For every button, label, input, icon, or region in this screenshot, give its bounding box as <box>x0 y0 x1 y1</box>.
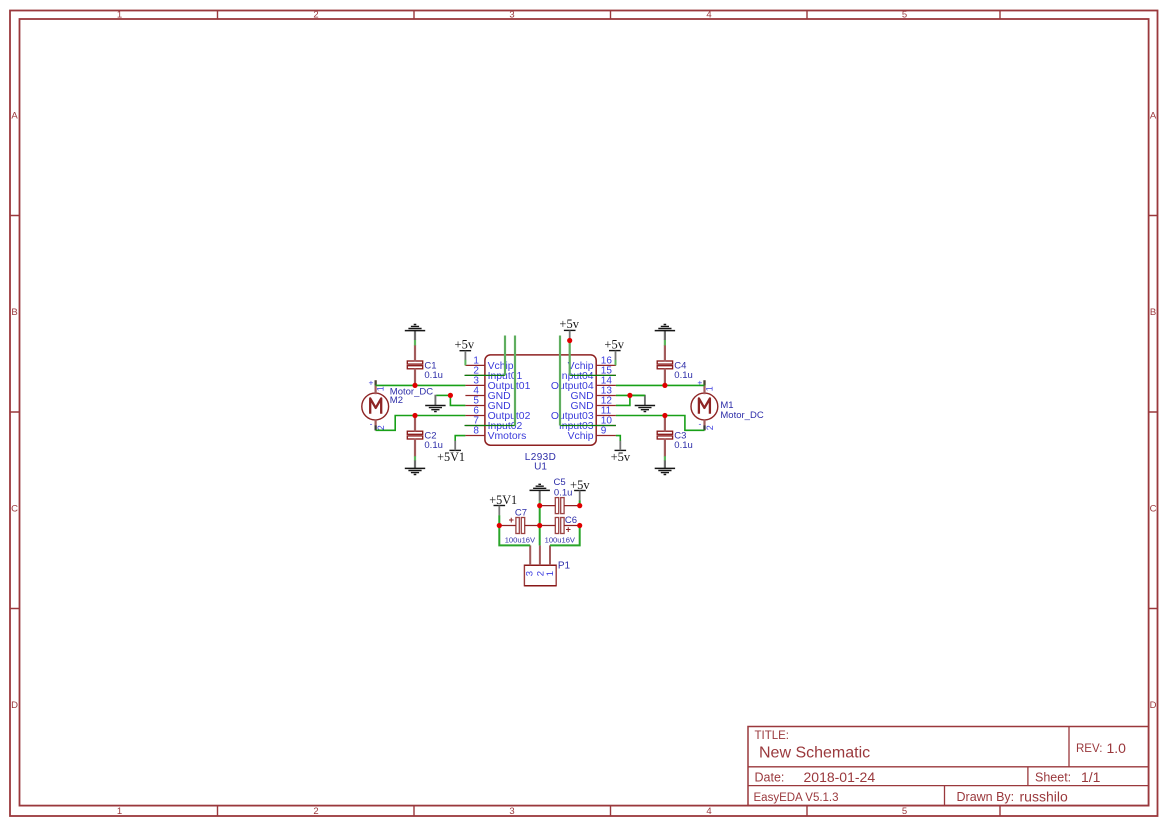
svg-text:0.1u: 0.1u <box>674 440 693 451</box>
svg-text:0.1u: 0.1u <box>674 370 693 381</box>
svg-text:3: 3 <box>509 806 514 817</box>
svg-text:Date:: Date: <box>755 771 785 785</box>
svg-text:2: 2 <box>313 10 318 21</box>
svg-text:Vmotors: Vmotors <box>488 431 527 442</box>
svg-text:Vchip: Vchip <box>568 431 594 442</box>
svg-text:C: C <box>1150 503 1157 514</box>
svg-text:100u16V: 100u16V <box>545 535 576 544</box>
svg-text:B: B <box>1150 307 1156 318</box>
svg-text:EasyEDA V5.1.3: EasyEDA V5.1.3 <box>754 792 839 804</box>
svg-text:+5v: +5v <box>570 478 590 492</box>
svg-text:100u16V: 100u16V <box>505 535 536 544</box>
svg-text:D: D <box>1150 700 1157 711</box>
svg-text:1: 1 <box>117 806 122 817</box>
svg-text:5: 5 <box>902 10 907 21</box>
svg-text:U1: U1 <box>534 462 547 473</box>
svg-text:-: - <box>698 419 701 429</box>
svg-text:1: 1 <box>545 571 556 576</box>
svg-text:2: 2 <box>313 806 318 817</box>
svg-text:+: + <box>369 377 374 387</box>
svg-text:C: C <box>11 503 18 514</box>
svg-text:+5V1: +5V1 <box>437 450 465 464</box>
svg-text:0.1u: 0.1u <box>554 488 573 499</box>
svg-text:1.0: 1.0 <box>1107 740 1127 756</box>
svg-text:+5V1: +5V1 <box>489 493 517 507</box>
svg-text:3: 3 <box>509 10 514 21</box>
svg-text:4: 4 <box>706 806 711 817</box>
svg-text:+5v: +5v <box>604 337 624 351</box>
svg-text:Sheet:: Sheet: <box>1035 771 1071 785</box>
svg-text:+5v: +5v <box>455 338 475 352</box>
svg-text:Drawn By:: Drawn By: <box>957 790 1015 804</box>
svg-text:New Schematic: New Schematic <box>759 745 870 762</box>
svg-text:M1: M1 <box>720 400 733 411</box>
svg-text:+: + <box>509 515 514 525</box>
svg-text:0.1u: 0.1u <box>424 370 443 381</box>
svg-text:+5v: +5v <box>559 317 579 331</box>
svg-text:1: 1 <box>375 386 385 391</box>
svg-text:TITLE:: TITLE: <box>755 730 790 742</box>
svg-text:2: 2 <box>705 425 715 430</box>
svg-text:C5: C5 <box>554 477 566 488</box>
svg-text:5: 5 <box>902 806 907 817</box>
svg-text:A: A <box>11 110 18 121</box>
svg-text:P1: P1 <box>558 561 571 572</box>
svg-text:9: 9 <box>601 426 607 437</box>
svg-text:A: A <box>1150 110 1157 121</box>
svg-text:1: 1 <box>704 386 714 391</box>
svg-text:Motor_DC: Motor_DC <box>720 410 763 421</box>
svg-text:+: + <box>566 525 571 535</box>
svg-text:4: 4 <box>706 10 711 21</box>
svg-text:REV:: REV: <box>1076 743 1102 755</box>
svg-text:3: 3 <box>524 571 535 576</box>
svg-text:russhilo: russhilo <box>1020 789 1068 805</box>
svg-text:8: 8 <box>473 426 479 437</box>
svg-text:B: B <box>11 307 17 318</box>
svg-text:1/1: 1/1 <box>1081 769 1101 785</box>
svg-text:C7: C7 <box>515 507 527 518</box>
svg-text:D: D <box>11 700 18 711</box>
svg-text:1: 1 <box>117 10 122 21</box>
svg-text:+5v: +5v <box>611 450 631 464</box>
svg-text:M2: M2 <box>390 395 403 406</box>
svg-text:-: - <box>370 419 373 429</box>
svg-text:2018-01-24: 2018-01-24 <box>804 769 876 785</box>
